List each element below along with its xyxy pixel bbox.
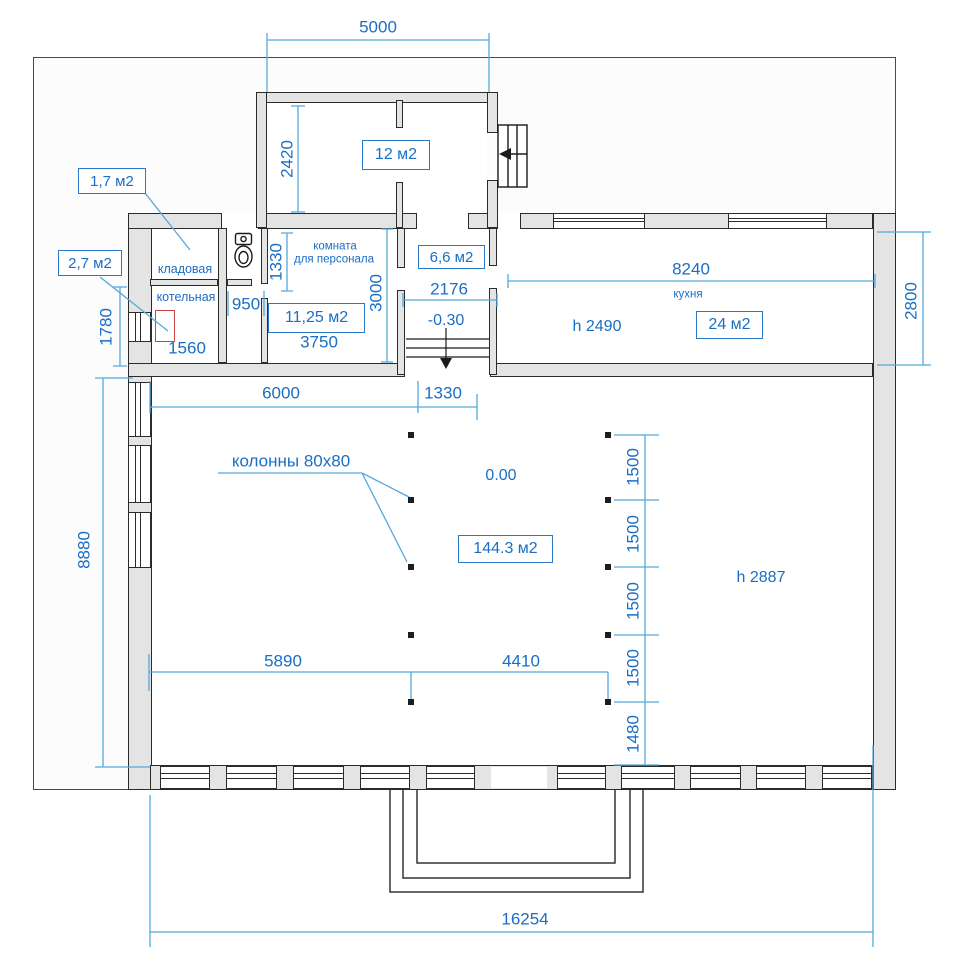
window-boiler [128, 312, 151, 342]
dim-1330-wc-label: 1330 [268, 243, 285, 281]
dim-1500-label-2: 1500 [625, 515, 642, 553]
dim-5000-label: 5000 [359, 19, 397, 36]
area-box-tambour: 12 м2 [362, 140, 430, 170]
window [621, 766, 675, 789]
dim-1500-label-4: 1500 [625, 649, 642, 687]
wall-tambour-partition-b [396, 182, 403, 228]
porch-step-middle [403, 790, 630, 878]
window [756, 766, 806, 789]
dim-1560-label: 1560 [168, 340, 206, 357]
area-box-hall: 144.3 м2 [458, 535, 553, 563]
wall-storage-boiler-divide [150, 279, 218, 286]
wall-wc-bottom [227, 279, 252, 286]
room-label-kitchen: кухня [673, 289, 702, 301]
room-label-storage: кладовая [158, 263, 212, 276]
dim-3750-label: 3750 [300, 334, 338, 351]
callout-boiler-area: 2,7 м2 [58, 250, 122, 276]
wall-staff-right-a [397, 228, 405, 268]
window [226, 766, 277, 789]
wall-divide-left [128, 363, 405, 377]
wall-wc-right-b [261, 298, 268, 363]
dim-3000-label: 3000 [368, 274, 385, 312]
dim-16254-label: 16254 [501, 911, 548, 928]
window [426, 766, 475, 789]
area-tambour-label: 12 м2 [375, 147, 417, 163]
porch-step-inner [417, 790, 615, 863]
columns-note: колонны 80x80 [232, 453, 350, 470]
dim-1500-label-1: 1500 [625, 448, 642, 486]
height-hall: h 2887 [737, 570, 786, 586]
dim-950-label: 950 [232, 296, 260, 313]
wall-tambour-right-b [487, 180, 498, 228]
window [822, 766, 872, 789]
wall-top-b [258, 213, 417, 229]
window [553, 213, 645, 229]
area-entry-label: 6,6 м2 [430, 250, 474, 265]
dim-8240-label: 8240 [672, 261, 710, 278]
wall-tambour-right-a [487, 92, 498, 133]
window [728, 213, 827, 229]
wall-tambour-partition-a [396, 100, 403, 128]
area-box-entry: 6,6 м2 [418, 245, 485, 269]
wall-divide-right [490, 363, 873, 377]
window [557, 766, 606, 789]
room-label-boiler: котельная [157, 291, 216, 304]
window [293, 766, 344, 789]
window [128, 512, 151, 568]
dim-2800-label: 2800 [903, 282, 920, 320]
dim-1500-label-3: 1500 [625, 582, 642, 620]
level-hall: 0.00 [485, 468, 516, 484]
wall-tambour-left [256, 92, 267, 228]
callout-storage-area-label: 1,7 м2 [90, 174, 134, 189]
top-wall-door-gap-2 [417, 213, 468, 229]
room-label-staff-1: комната [313, 241, 357, 253]
area-kitchen-label: 24 м2 [708, 317, 750, 333]
room-label-staff-2: для персонала [294, 254, 374, 266]
window [128, 445, 151, 503]
window [360, 766, 410, 789]
area-box-kitchen: 24 м2 [696, 311, 763, 339]
level-entry: -0.30 [428, 313, 464, 329]
dim-6000-label: 6000 [262, 385, 300, 402]
vestibule-gap-floor [405, 363, 490, 377]
area-box-staff: 11,25 м2 [268, 303, 365, 333]
callout-storage-area: 1,7 м2 [78, 168, 146, 194]
dim-2176-label: 2176 [430, 281, 468, 298]
wall-staff-right-b [397, 290, 405, 375]
dim-4410-label: 4410 [502, 653, 540, 670]
dim-1330-hall-label: 1330 [424, 385, 462, 402]
window [128, 382, 151, 437]
height-kitchen: h 2490 [573, 319, 622, 335]
dim-1480-label: 1480 [625, 715, 642, 753]
window [690, 766, 741, 789]
dim-1780-label: 1780 [98, 308, 115, 346]
area-staff-label: 11,25 м2 [285, 310, 348, 326]
porch-steps [390, 790, 643, 892]
entrance-door-opening [491, 767, 547, 788]
dim-2420-label: 2420 [279, 140, 296, 178]
window [160, 766, 210, 789]
wall-top-a [128, 213, 222, 229]
wall-kitchen-left-b [489, 288, 497, 375]
dim-5890-label: 5890 [264, 653, 302, 670]
top-wall-door-gap-1 [222, 213, 258, 229]
wall-kitchen-left-a [489, 228, 497, 266]
callout-boiler-area-label: 2,7 м2 [68, 256, 112, 271]
wall-right [873, 213, 896, 790]
boiler-unit [155, 310, 175, 342]
dim-8880-label: 8880 [76, 531, 93, 569]
floor-plan: 1,7 м2 2,7 м2 12 м2 6,6 м2 11,25 м2 24 м… [0, 0, 953, 972]
wall-storage-right [218, 228, 227, 363]
top-wall-entrance-gap [498, 213, 520, 229]
wall-tambour-top [256, 92, 498, 103]
area-hall-label: 144.3 м2 [473, 541, 537, 557]
porch-step-outer [390, 790, 643, 892]
